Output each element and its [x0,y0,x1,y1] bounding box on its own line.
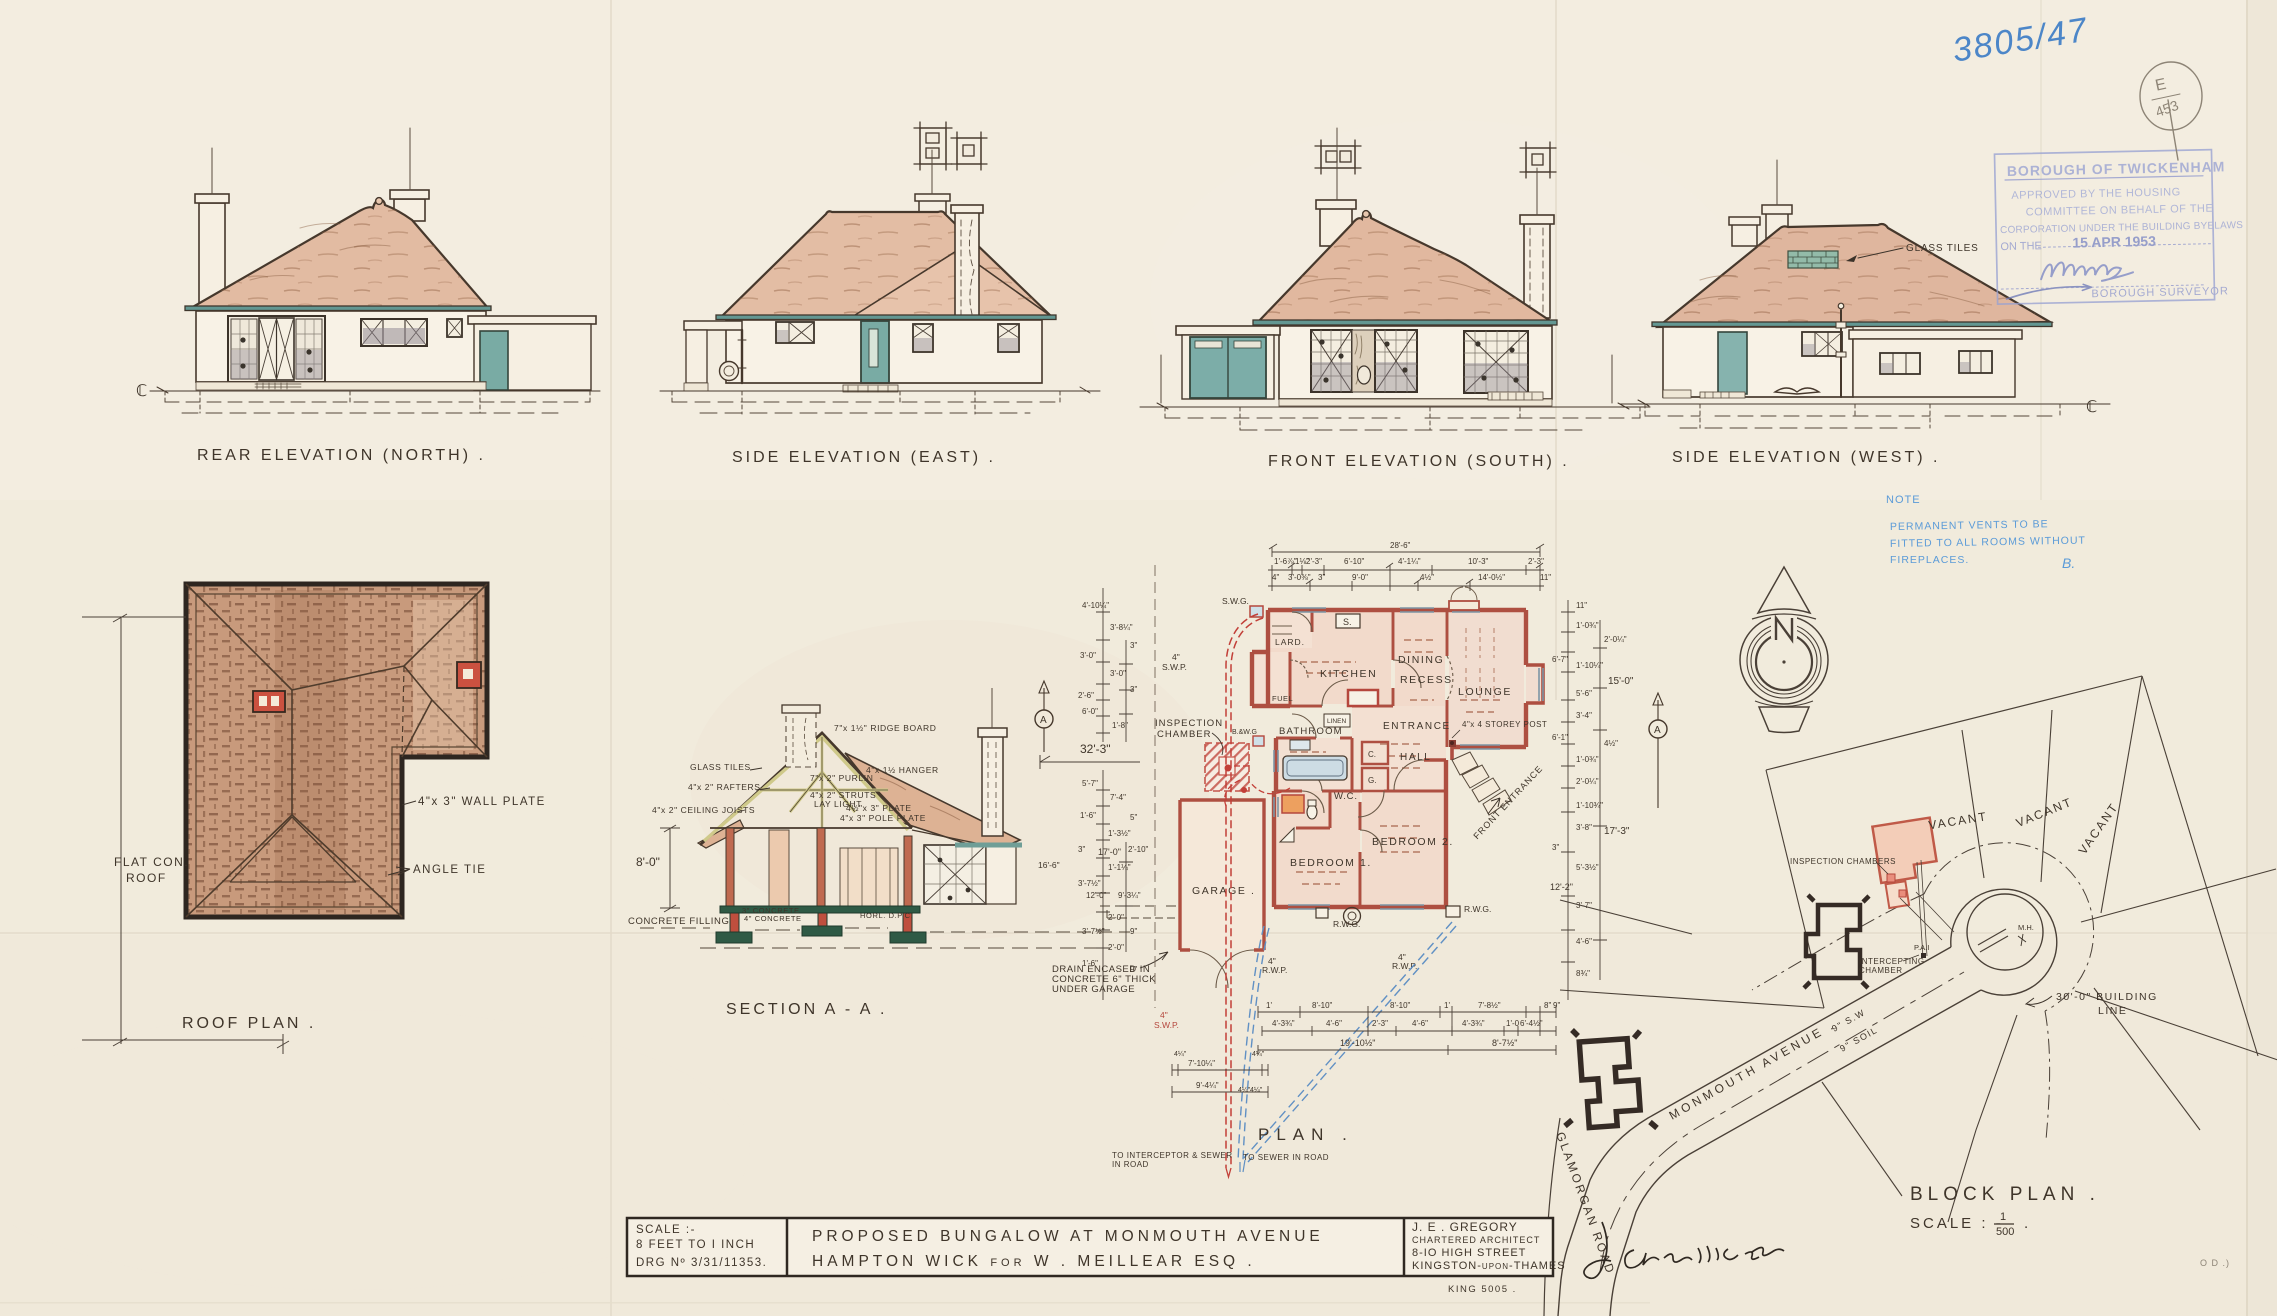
svg-text:3'-8": 3'-8" [1576,823,1592,832]
svg-text:3'-0": 3'-0" [1080,651,1096,660]
svg-text:1'-8": 1'-8" [1112,721,1128,730]
svg-text:1'-10¾": 1'-10¾" [1576,801,1603,810]
svg-text:TO INTERCEPTOR & SEWER: TO INTERCEPTOR & SEWER [1112,1151,1233,1160]
svg-text:4½"x 3" PLATE: 4½"x 3" PLATE [846,803,912,813]
svg-text:FLAT CON.: FLAT CON. [114,855,189,869]
svg-text:4'-3¾": 4'-3¾" [1272,1019,1295,1028]
svg-text:4"x 3" WALL PLATE: 4"x 3" WALL PLATE [418,796,546,808]
svg-text:BATHROOM: BATHROOM [1279,726,1343,737]
svg-text:BEDROOM 2.: BEDROOM 2. [1372,836,1454,848]
svg-text:10'-3": 10'-3" [1468,557,1489,566]
svg-text:CHAMBER: CHAMBER [1859,966,1903,975]
svg-text:4": 4" [1272,573,1279,582]
svg-text:8'-10": 8'-10" [1312,1001,1333,1010]
svg-text:2'-0¼": 2'-0¼" [1604,635,1627,644]
svg-text:W.C.: W.C. [1334,791,1358,802]
svg-text:REAR ELEVATION (NORTH) .: REAR ELEVATION (NORTH) . [197,447,486,464]
svg-text:4'-6": 4'-6" [1326,1019,1342,1028]
svg-text:KING 5005 .: KING 5005 . [1448,1284,1517,1295]
svg-text:3'-7½": 3'-7½" [1078,879,1101,888]
svg-text:2'-3": 2'-3" [1528,557,1544,566]
svg-text:BEDROOM 1.: BEDROOM 1. [1290,857,1372,869]
svg-text:6'-0": 6'-0" [1082,707,1098,716]
svg-text:3'-7": 3'-7" [1576,901,1592,910]
svg-text:12'-0": 12'-0" [1086,891,1107,900]
svg-text:SIDE ELEVATION (WEST) .: SIDE ELEVATION (WEST) . [1672,449,1940,466]
svg-text:1: 1 [2000,1211,2006,1223]
svg-text:TO SEWER IN ROAD: TO SEWER IN ROAD [1243,1153,1329,1162]
svg-text:4": 4" [1160,1010,1168,1020]
svg-text:8¾": 8¾" [1576,969,1590,978]
svg-text:7"x 2" PURLIN: 7"x 2" PURLIN [810,773,873,783]
svg-text:KINGSTON-UPON-THAMES: KINGSTON-UPON-THAMES [1412,1260,1566,1272]
svg-text:15 APR 1953: 15 APR 1953 [2072,233,2156,251]
svg-text:LINEN: LINEN [1327,718,1346,725]
svg-text:5": 5" [1130,813,1137,822]
svg-text:ENTRANCE: ENTRANCE [1383,721,1451,732]
svg-text:RECESS: RECESS [1400,674,1453,686]
svg-text:2'-3": 2'-3" [1372,1019,1388,1028]
svg-text:2'-10": 2'-10" [1128,845,1149,854]
svg-text:6'-7": 6'-7" [1552,655,1568,664]
svg-text:.: . [2024,1215,2028,1232]
svg-text:4¼": 4¼" [1174,1051,1187,1058]
svg-text:G.: G. [1368,776,1376,785]
svg-text:LINE: LINE [2098,1005,2127,1017]
svg-text:17'-3": 17'-3" [1604,826,1630,837]
svg-text:1': 1' [1266,1001,1272,1010]
svg-text:J. E . GREGORY: J. E . GREGORY [1412,1220,1518,1234]
svg-text:3'-8¼": 3'-8¼" [1110,623,1133,632]
svg-text:4¼": 4¼" [1250,1087,1263,1094]
svg-text:FIREPLACES.: FIREPLACES. [1890,554,1969,566]
svg-text:S.: S. [1343,617,1352,627]
svg-text:7'-8½": 7'-8½" [1478,1001,1501,1010]
svg-text:1'-6": 1'-6" [1080,811,1096,820]
svg-text:CHAMBER: CHAMBER [1157,729,1212,740]
svg-text:1'-0¾": 1'-0¾" [1576,621,1599,630]
svg-text:32'-3": 32'-3" [1080,742,1111,756]
svg-text:1'-0: 1'-0 [1506,1019,1520,1028]
svg-text:4": 4" [1172,652,1180,662]
svg-text:ROOF PLAN .: ROOF PLAN . [182,1015,316,1032]
svg-text:7'-4": 7'-4" [1110,793,1126,802]
svg-text:GLASS TILES: GLASS TILES [1906,243,1979,254]
svg-text:HALL: HALL [1400,752,1431,763]
svg-text:14'-0½": 14'-0½" [1478,573,1505,582]
svg-text:INSPECTION: INSPECTION [1155,718,1223,729]
svg-text:FUEL: FUEL [1272,694,1293,703]
svg-text:4½": 4½" [1604,739,1618,748]
svg-text:9'-3¼": 9'-3¼" [1118,891,1141,900]
svg-text:4" CONCRETE: 4" CONCRETE [744,914,802,923]
svg-text:3'-4": 3'-4" [1576,711,1592,720]
svg-text:5'-3½": 5'-3½" [1576,863,1599,872]
svg-text:11": 11" [1576,601,1587,610]
svg-text:4'-10¼": 4'-10¼" [1082,601,1109,610]
svg-text:3'-7½": 3'-7½" [1082,927,1105,936]
svg-text:2'-3": 2'-3" [1306,557,1322,566]
svg-text:P.A.I: P.A.I [1914,943,1929,952]
svg-text:R.W.P.: R.W.P. [1262,965,1287,975]
svg-text:8'-10": 8'-10" [1390,1001,1411,1010]
svg-text:500: 500 [1996,1226,2014,1238]
svg-text:3": 3" [1130,641,1137,650]
svg-text:7'-10¼": 7'-10¼" [1188,1059,1215,1068]
svg-text:DINING: DINING [1398,654,1444,666]
svg-text:SCALE :-: SCALE :- [636,1224,696,1236]
svg-text:B.&W.G: B.&W.G [1232,729,1257,736]
svg-text:9'-4¼": 9'-4¼" [1196,1081,1219,1090]
svg-text:CHARTERED ARCHITECT: CHARTERED ARCHITECT [1412,1235,1540,1245]
svg-text:S.W.P.: S.W.P. [1162,662,1187,672]
svg-text:2'-0¼": 2'-0¼" [1576,777,1599,786]
svg-text:4"x 4 STOREY POST: 4"x 4 STOREY POST [1462,720,1547,729]
svg-text:R.W.G.: R.W.G. [1464,904,1491,914]
svg-text:8 FEET TO I INCH: 8 FEET TO I INCH [636,1239,755,1251]
svg-text:GLASS TILES: GLASS TILES [690,762,751,772]
svg-text:SIDE ELEVATION (EAST) .: SIDE ELEVATION (EAST) . [732,449,996,466]
svg-text:BLOCK PLAN .: BLOCK PLAN . [1910,1184,2100,1205]
svg-text:8'-0": 8'-0" [636,855,660,869]
svg-text:R.W.G.: R.W.G. [1333,919,1360,929]
svg-text:4'-6": 4'-6" [1576,937,1592,946]
svg-text:1': 1' [1444,1001,1450,1010]
svg-text:A: A [1040,715,1047,726]
svg-text:NOTE: NOTE [1886,494,1921,506]
svg-text:4'-3¾": 4'-3¾" [1462,1019,1485,1028]
svg-text:PLAN .: PLAN . [1258,1125,1354,1144]
svg-text:3": 3" [1078,845,1085,854]
svg-text:8-IO HIGH STREET: 8-IO HIGH STREET [1412,1247,1526,1259]
svg-text:C.: C. [1368,750,1376,759]
svg-text:1'-3½": 1'-3½" [1108,829,1131,838]
svg-text:2'-0": 2'-0" [1108,943,1124,952]
svg-text:2'-0": 2'-0" [1108,913,1124,922]
svg-text:HORL. D.P.C.: HORL. D.P.C. [860,911,913,920]
svg-text:4½": 4½" [1420,573,1434,582]
svg-text:S.W.G.: S.W.G. [1222,596,1249,606]
svg-text:CONCRETE FILLING: CONCRETE FILLING [628,916,729,927]
svg-text:5'-6": 5'-6" [1576,689,1592,698]
svg-text:17'-0": 17'-0" [1098,847,1121,857]
svg-text:3'-0": 3'-0" [1110,669,1126,678]
svg-text:S.W.P.: S.W.P. [1154,1020,1179,1030]
svg-text:28'-6": 28'-6" [1390,541,1411,550]
svg-text:4¼": 4¼" [1238,1087,1251,1094]
svg-text:3": 3" [1318,573,1325,582]
svg-text:ROOF: ROOF [126,871,167,885]
svg-text:8'-7½": 8'-7½" [1492,1038,1517,1048]
svg-text:4¼": 4¼" [1252,1051,1265,1058]
svg-text:5'-7": 5'-7" [1082,779,1098,788]
svg-text:9": 9" [1130,927,1137,936]
svg-text:ℂ: ℂ [2086,399,2097,416]
svg-text:GARAGE .: GARAGE . [1192,885,1256,897]
svg-text:4"x 3" POLE PLATE: 4"x 3" POLE PLATE [840,813,926,823]
svg-text:KITCHEN: KITCHEN [1320,668,1377,680]
svg-text:DRG Nº 3/31/11353.: DRG Nº 3/31/11353. [636,1257,767,1269]
svg-text:2'-6": 2'-6" [1078,691,1094,700]
svg-text:3": 3" [1130,685,1137,694]
svg-text:LARD.: LARD. [1275,637,1305,647]
svg-text:1'-1¼": 1'-1¼" [1108,863,1131,872]
svg-text:4'-6": 4'-6" [1412,1019,1428,1028]
svg-text:11": 11" [1540,573,1551,582]
svg-text:19'-10½": 19'-10½" [1340,1038,1375,1048]
svg-text:FRONT ELEVATION (SOUTH) .: FRONT ELEVATION (SOUTH) . [1268,453,1570,470]
svg-text:3": 3" [1552,843,1559,852]
svg-text:A: A [1654,725,1661,736]
svg-text:7"x 1½" RIDGE BOARD: 7"x 1½" RIDGE BOARD [834,723,936,733]
svg-text:16'-6": 16'-6" [1038,860,1060,870]
svg-text:SECTION A - A .: SECTION A - A . [726,1001,887,1018]
svg-text:M.H.: M.H. [2018,923,2034,932]
svg-text:4'-1¼": 4'-1¼" [1398,557,1421,566]
svg-text:4"x 2" CEILING JOISTS: 4"x 2" CEILING JOISTS [652,805,755,815]
svg-text:ℂ: ℂ [136,383,147,400]
svg-text:SCALE : -: SCALE : - [1910,1215,2004,1232]
svg-text:INTERCEPTING: INTERCEPTING [1859,957,1925,966]
svg-text:B.: B. [2062,555,2075,571]
svg-text:INSPECTION CHAMBERS: INSPECTION CHAMBERS [1790,857,1896,866]
svg-text:1'-6⅞": 1'-6⅞" [1274,557,1297,566]
svg-text:30'-0" BUILDING: 30'-0" BUILDING [2056,991,2158,1003]
svg-text:9": 9" [1553,1001,1560,1010]
svg-text:6'-4½": 6'-4½" [1520,1019,1543,1028]
svg-text:9'-0": 9'-0" [1352,573,1368,582]
svg-text:O D .): O D .) [2200,1258,2230,1268]
svg-text:1'-10¼": 1'-10¼" [1576,661,1603,670]
svg-text:LOUNGE: LOUNGE [1458,686,1512,698]
svg-text:1'-0¾": 1'-0¾" [1576,755,1599,764]
svg-text:PROPOSED BUNGALOW AT MON: PROPOSED BUNGALOW AT MONMOUTH AVENUE [812,1228,1324,1245]
svg-text:HAMPTON WICK FOR W . MEI: HAMPTON WICK FOR W . MEILLEAR ESQ . [812,1253,1256,1270]
svg-text:4"x 2" RAFTERS: 4"x 2" RAFTERS [688,782,761,792]
svg-text:15'-0": 15'-0" [1608,676,1634,687]
svg-text:12'-2": 12'-2" [1550,882,1573,892]
svg-text:4"x 1½ HANGER: 4"x 1½ HANGER [866,765,939,775]
svg-text:IN ROAD: IN ROAD [1112,1160,1149,1169]
svg-text:UNDER GARAGE: UNDER GARAGE [1052,984,1135,995]
svg-text:ANGLE TIE: ANGLE TIE [413,864,486,876]
svg-text:ON THE: ON THE [2000,240,2042,253]
svg-text:6'-1": 6'-1" [1552,733,1568,742]
svg-text:8": 8" [1544,1001,1551,1010]
svg-text:6'-10": 6'-10" [1344,557,1365,566]
svg-text:3'-0⅜": 3'-0⅜" [1288,573,1311,582]
